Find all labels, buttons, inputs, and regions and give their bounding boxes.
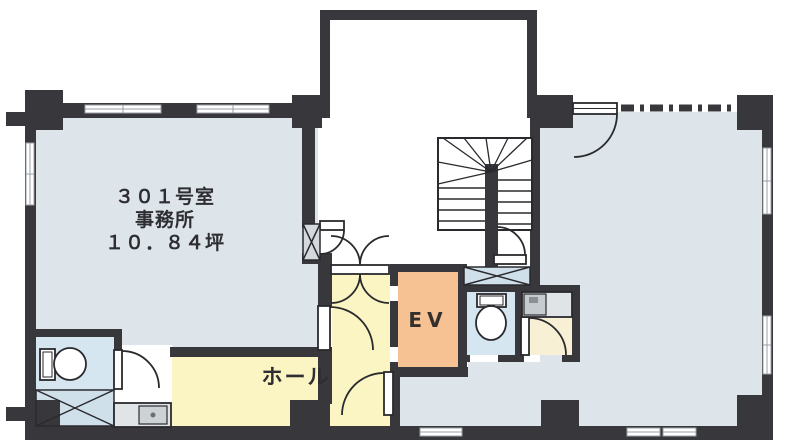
- room-301-use: 事務所: [55, 209, 275, 232]
- toilet-icon: [40, 348, 86, 380]
- elevator-label: EV: [398, 308, 458, 332]
- double-swing-door: [331, 236, 389, 303]
- toilet-left-door-arc: [114, 350, 159, 389]
- right-room-entry-door-arc: [573, 103, 617, 157]
- toilet-icon: [476, 294, 506, 340]
- room-301-label: ３０１号室 事務所 １０．８４坪: [55, 186, 275, 256]
- stair-exit-door-arc: [494, 227, 526, 264]
- washroom-door-arc: [521, 317, 566, 355]
- floorplan-canvas: ３０１号室 事務所 １０．８４坪 EV ホール: [0, 0, 800, 447]
- room-301-number: ３０１号室: [55, 186, 275, 209]
- room-301-area: １０．８４坪: [55, 232, 275, 255]
- office-entry-door-arc: [318, 306, 373, 350]
- sink-icon: [114, 403, 171, 427]
- kitchenette-sink-icon: [522, 292, 572, 317]
- hall-label: ホール: [238, 365, 354, 391]
- x-shaft-icon: [464, 267, 530, 285]
- x-shaft-icon: [303, 224, 320, 260]
- window: [26, 105, 771, 436]
- x-shaft-icon: [36, 390, 114, 426]
- staircase-icon: [438, 138, 532, 268]
